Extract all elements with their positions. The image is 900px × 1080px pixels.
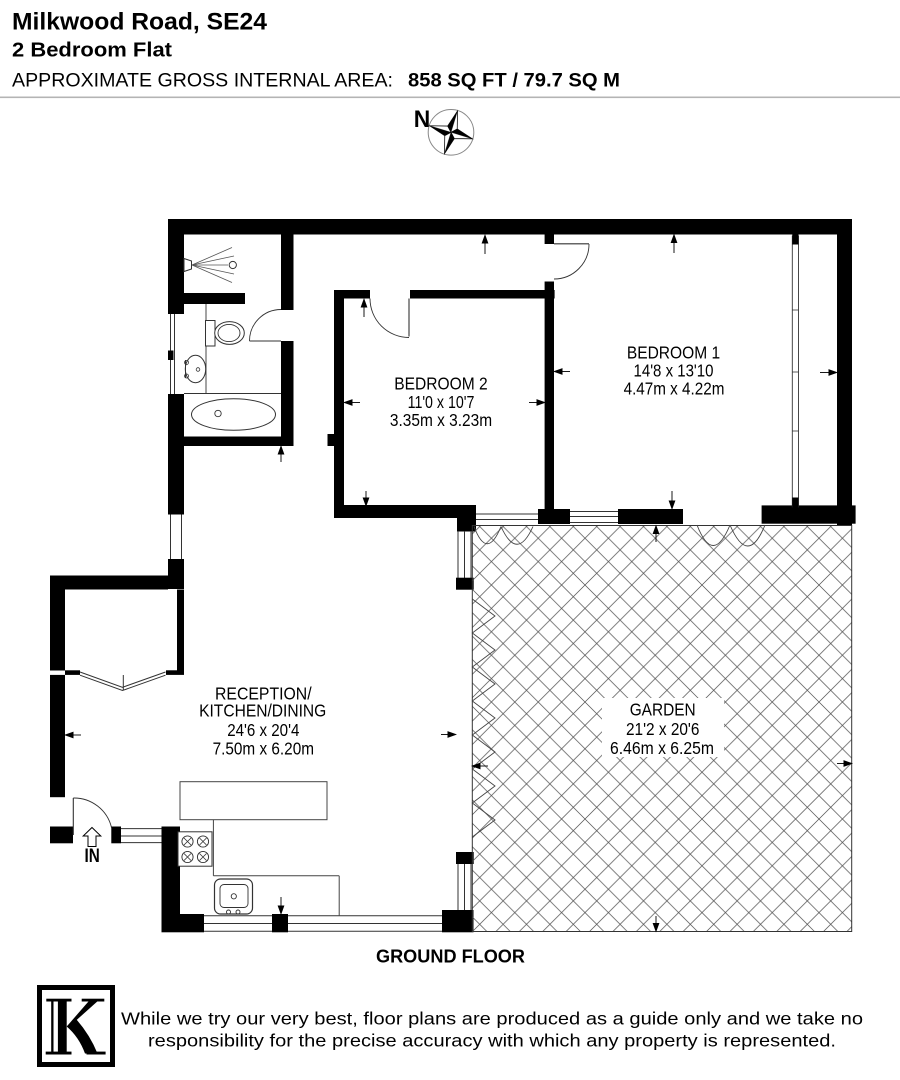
svg-text:responsibility for the precise: responsibility for the precise accuracy … <box>148 1031 836 1051</box>
svg-text:BEDROOM 2: BEDROOM 2 <box>394 374 487 394</box>
svg-text:858 SQ FT / 79.7 SQ M: 858 SQ FT / 79.7 SQ M <box>408 70 620 92</box>
svg-text:GARDEN: GARDEN <box>630 699 696 719</box>
svg-text:4.47m x 4.22m: 4.47m x 4.22m <box>624 379 725 399</box>
svg-text:3.35m x 3.23m: 3.35m x 3.23m <box>390 410 492 430</box>
svg-text:6.46m x 6.25m: 6.46m x 6.25m <box>610 738 714 758</box>
svg-text:7.50m x 6.20m: 7.50m x 6.20m <box>213 738 314 758</box>
svg-text:2 Bedroom Flat: 2 Bedroom Flat <box>12 40 172 62</box>
svg-text:Milkwood Road, SE24: Milkwood Road, SE24 <box>12 9 268 36</box>
svg-text:N: N <box>414 106 431 133</box>
svg-text:KITCHEN/DINING: KITCHEN/DINING <box>199 701 326 721</box>
svg-text:BEDROOM 1: BEDROOM 1 <box>627 343 720 363</box>
svg-text:24'6 x 20'4: 24'6 x 20'4 <box>227 720 299 740</box>
svg-text:11'0 x 10'7: 11'0 x 10'7 <box>408 392 475 412</box>
svg-text:IN: IN <box>85 846 100 867</box>
svg-text:GROUND FLOOR: GROUND FLOOR <box>376 947 525 967</box>
svg-text:21'2 x 20'6: 21'2 x 20'6 <box>626 719 700 739</box>
svg-text:APPROXIMATE GROSS INTERNAL ARE: APPROXIMATE GROSS INTERNAL AREA: <box>12 70 393 92</box>
svg-text:While we try our very best, fl: While we try our very best, floor plans … <box>121 1009 863 1029</box>
svg-text:14'8 x 13'10: 14'8 x 13'10 <box>634 361 714 381</box>
